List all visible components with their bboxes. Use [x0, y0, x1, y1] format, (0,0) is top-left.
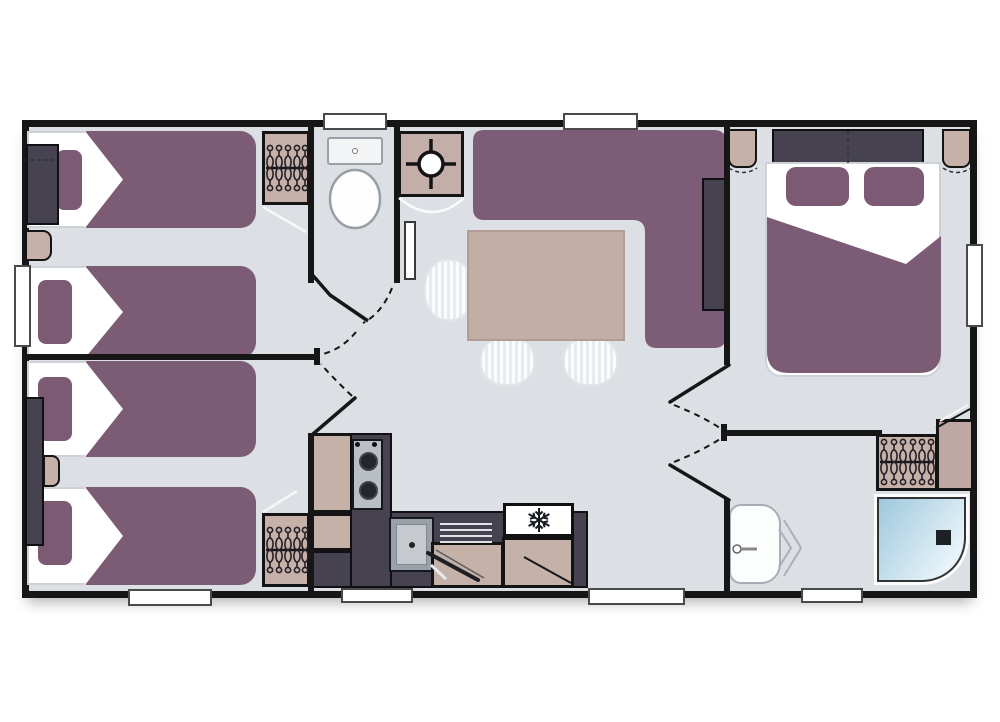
- floor-plan-canvas: [0, 0, 1000, 722]
- wall-kitchen-left: [308, 433, 314, 593]
- duvet-fold: [85, 266, 123, 358]
- master-pillow-left: [786, 167, 849, 206]
- wicker-chair-bottom-1: [480, 336, 535, 386]
- kitchen-counter-corner: [310, 551, 352, 588]
- master-pillow-right: [864, 167, 924, 206]
- master-headboard: [772, 129, 924, 166]
- water-heater-box: [398, 131, 464, 197]
- hob-knob-2: [372, 442, 377, 447]
- single-bed-3-duvet: [86, 361, 256, 457]
- hob-burner-1: [359, 452, 378, 471]
- fridge: [503, 503, 574, 537]
- wall-panel: [404, 221, 416, 280]
- window-bottom-bedroom2: [128, 589, 212, 606]
- cabinet-under-fridge: [502, 537, 574, 588]
- single-bed-1-duvet: [86, 131, 256, 228]
- hob-burner-2: [359, 481, 378, 500]
- wall-shower-left: [724, 499, 730, 593]
- single-bed-2-pillow: [38, 280, 72, 344]
- wall-stub-right: [721, 424, 727, 441]
- single-bed-1-pillow: [56, 150, 82, 210]
- headboard-cabinet: [26, 144, 59, 225]
- single-bed-4-duvet: [86, 487, 256, 585]
- duvet-fold: [85, 487, 123, 585]
- wall-master-bottom: [724, 430, 882, 436]
- wall-wc-left: [308, 127, 314, 283]
- duvet-fold: [85, 131, 123, 228]
- nightstand-master-right: [942, 129, 971, 168]
- cabinet-shower-room: [936, 419, 974, 491]
- tall-side-cabinet: [25, 397, 44, 546]
- shower-drain: [936, 530, 951, 545]
- nightstand-bedroom1: [25, 230, 52, 261]
- wardrobe-bedroom1: [262, 131, 310, 205]
- shower-tray: [877, 497, 966, 582]
- window-bottom-hall: [588, 588, 685, 605]
- window-right-master: [966, 244, 983, 327]
- window-top-wc: [323, 113, 387, 130]
- nightstand-master-left: [728, 129, 757, 168]
- cabinet-next-to-sink: [431, 542, 504, 588]
- wall-wc-right: [394, 127, 400, 283]
- wicker-chair-bottom-2: [563, 336, 618, 386]
- window-top-living: [563, 113, 638, 130]
- wardrobe-bedroom2: [262, 513, 310, 587]
- washbasin: [729, 504, 781, 584]
- wall-stub-left: [314, 348, 320, 365]
- wall-bedroom-divider: [22, 354, 318, 360]
- wall-master-left: [724, 127, 730, 365]
- dining-table: [467, 230, 625, 341]
- wardrobe-shower-room: [876, 434, 938, 491]
- window-bottom-kitchen: [341, 588, 413, 603]
- single-bed-2-duvet: [86, 266, 256, 358]
- hob-knob-1: [355, 442, 360, 447]
- kitchen-cabinet-tall: [310, 433, 353, 513]
- duvet-fold: [85, 361, 123, 457]
- kitchen-cabinet-small: [310, 513, 353, 551]
- window-left-bedroom1: [14, 265, 31, 347]
- window-bottom-shower: [801, 588, 863, 603]
- nightstand-bedroom2: [43, 455, 60, 487]
- sink-drain: [409, 542, 415, 548]
